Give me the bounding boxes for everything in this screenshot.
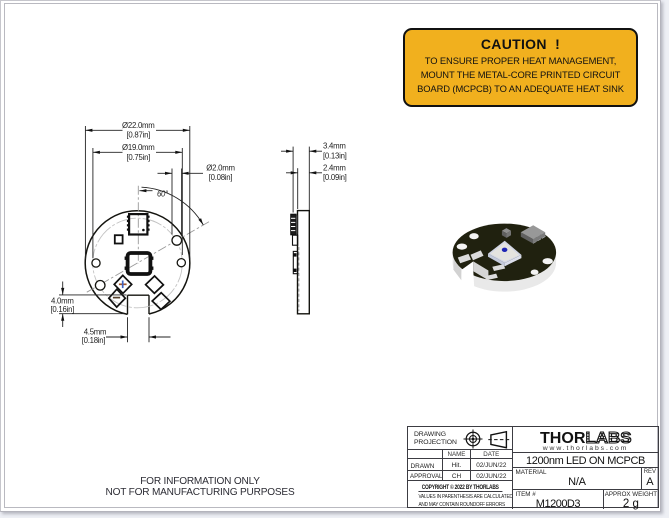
svg-text:[0.75in]: [0.75in] <box>127 153 151 162</box>
svg-text:3.4mm: 3.4mm <box>323 142 346 151</box>
svg-text:LABS: LABS <box>586 430 632 445</box>
svg-text:[0.87in]: [0.87in] <box>127 131 151 140</box>
svg-text:Ø22.0mm: Ø22.0mm <box>122 121 154 130</box>
svg-text:2.4mm: 2.4mm <box>323 163 346 172</box>
svg-text:[0.13in]: [0.13in] <box>323 151 347 160</box>
svg-text:[0.09in]: [0.09in] <box>323 173 347 182</box>
svg-text:[0.18in]: [0.18in] <box>82 336 106 345</box>
svg-text:[0.16in]: [0.16in] <box>51 305 75 314</box>
svg-text:Ø2.0mm: Ø2.0mm <box>206 163 234 172</box>
svg-text:4.5mm: 4.5mm <box>84 327 107 336</box>
svg-text:Ø19.0mm: Ø19.0mm <box>122 143 154 152</box>
svg-text:THOR: THOR <box>540 430 586 445</box>
svg-text:[0.08in]: [0.08in] <box>209 173 233 182</box>
svg-text:4.0mm: 4.0mm <box>51 296 74 305</box>
svg-text:60°: 60° <box>157 190 168 199</box>
